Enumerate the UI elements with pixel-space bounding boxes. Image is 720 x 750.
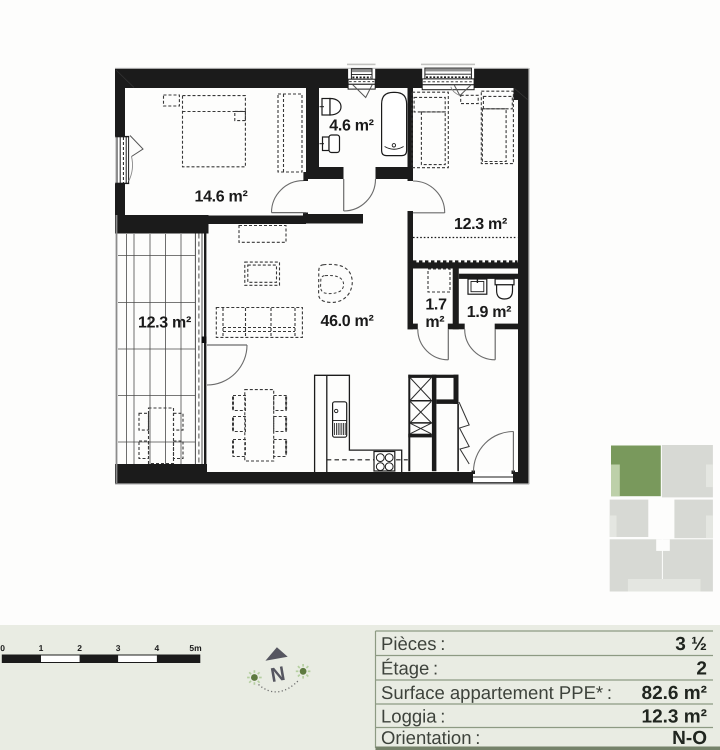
svg-text:m²: m²: [425, 314, 444, 331]
svg-text:1.7: 1.7: [425, 297, 447, 314]
svg-text:Loggia :: Loggia :: [381, 706, 445, 727]
svg-text:4.6 m²: 4.6 m²: [329, 118, 373, 135]
svg-text:0: 0: [0, 643, 5, 653]
svg-text:3 ½: 3 ½: [675, 634, 707, 655]
svg-text:46.0 m²: 46.0 m²: [320, 313, 373, 330]
svg-text:1: 1: [39, 643, 44, 653]
svg-text:2: 2: [77, 643, 82, 653]
svg-text:Orientation :: Orientation :: [381, 727, 480, 748]
svg-text:14.6 m²: 14.6 m²: [194, 189, 247, 206]
svg-text:5m: 5m: [189, 643, 202, 653]
svg-text:4: 4: [155, 643, 160, 653]
svg-text:2: 2: [696, 659, 707, 680]
svg-text:Étage :: Étage :: [381, 658, 438, 679]
svg-text:82.6 m²: 82.6 m²: [642, 683, 707, 704]
svg-text:12.3 m²: 12.3 m²: [138, 315, 191, 332]
svg-text:Pièces :: Pièces :: [381, 633, 445, 654]
svg-text:N-O: N-O: [672, 728, 707, 749]
svg-text:12.3 m²: 12.3 m²: [454, 216, 507, 233]
svg-text:3: 3: [116, 643, 121, 653]
svg-text:12.3 m²: 12.3 m²: [642, 707, 707, 728]
svg-text:1.9 m²: 1.9 m²: [467, 304, 511, 321]
svg-text:Surface appartement PPE* :: Surface appartement PPE* :: [381, 682, 612, 703]
